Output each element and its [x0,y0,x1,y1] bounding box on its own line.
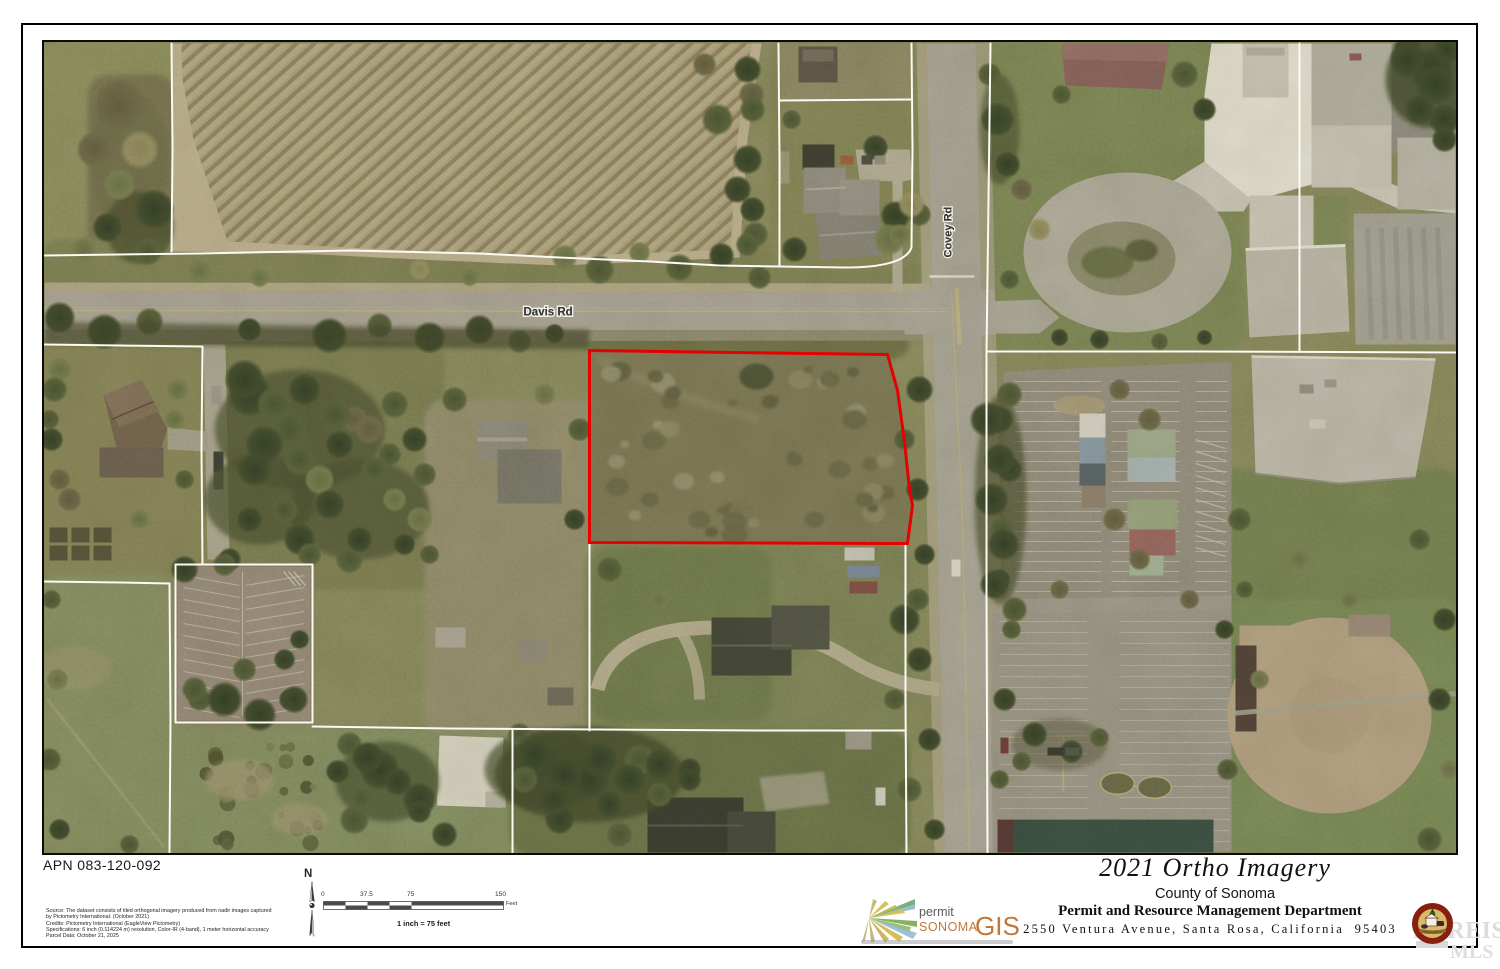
svg-text:SONOMA: SONOMA [1423,930,1441,935]
svg-text:Davis Rd: Davis Rd [524,307,573,319]
svg-text:permit: permit [919,905,954,919]
svg-text:GIS: GIS [975,911,1020,941]
svg-text:SONOMA: SONOMA [919,920,978,934]
svg-text:Covey Rd: Covey Rd [943,207,955,258]
